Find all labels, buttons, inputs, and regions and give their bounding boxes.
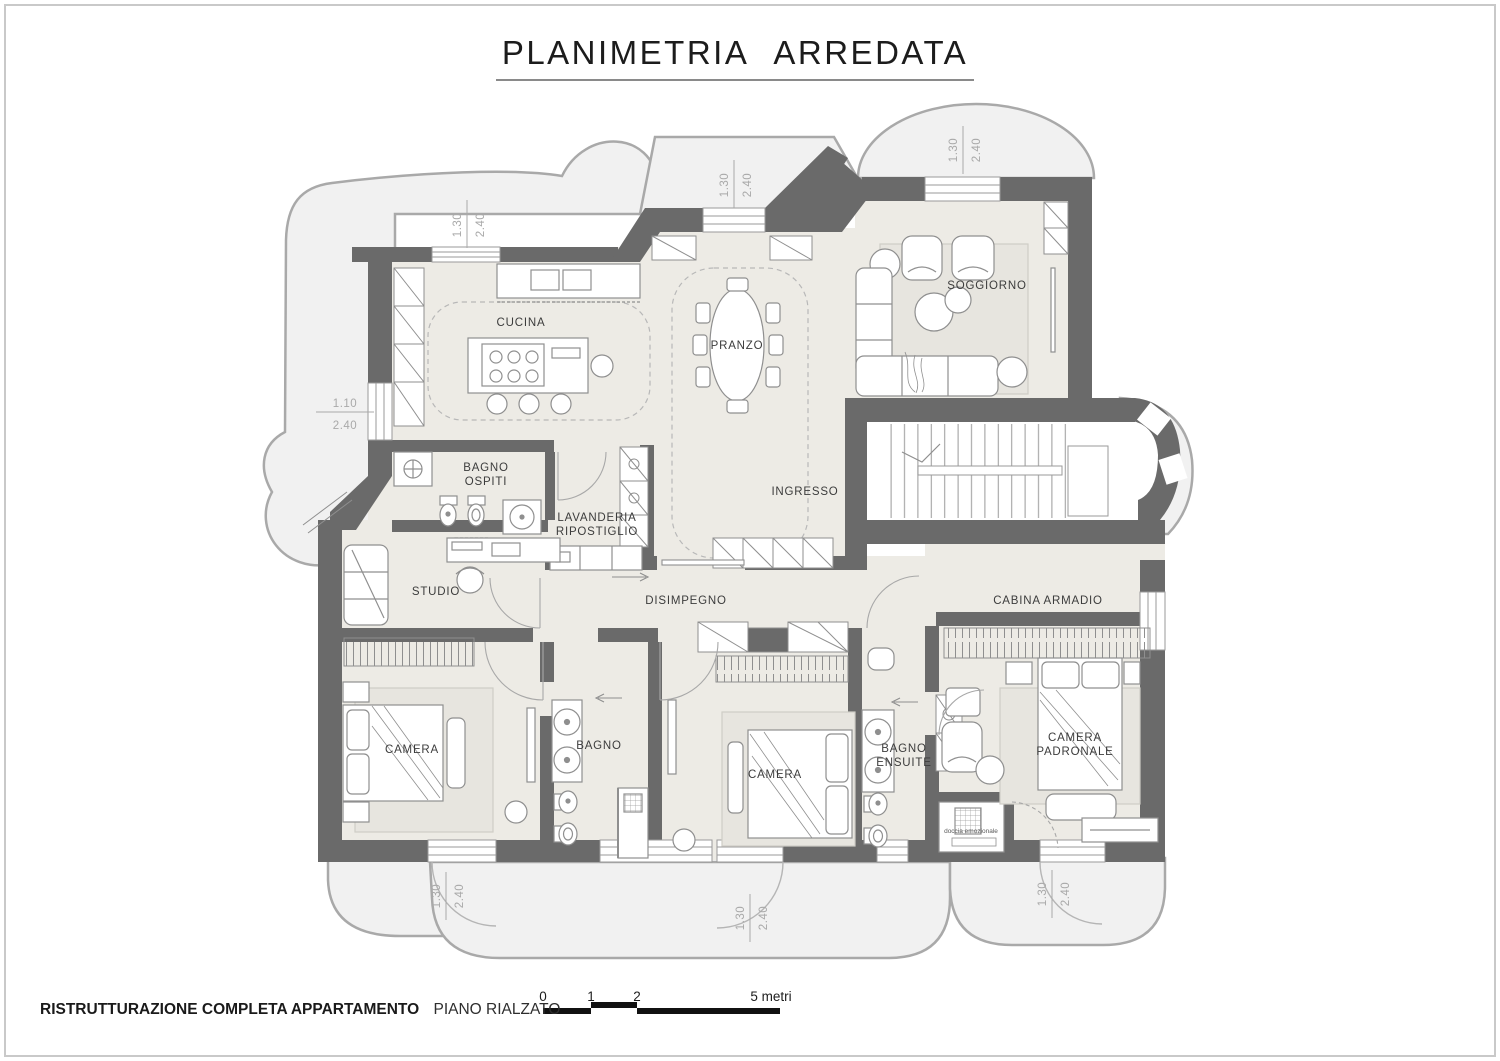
floor-name: PIANO RIALZATO	[433, 1001, 560, 1018]
drawing-sheet: PLANIMETRIA ARREDATA	[0, 0, 1500, 1061]
svg-text:1.30: 1.30	[948, 138, 960, 162]
room-label-bagno-ospiti-1: BAGNO	[463, 462, 509, 474]
room-label-studio: STUDIO	[412, 586, 460, 598]
room-label-doccia-emozionale: doccia emozionale	[944, 828, 998, 835]
room-label-bagno-ospiti-2: OSPITI	[465, 476, 508, 488]
window-bagno-sud	[600, 840, 712, 862]
living-room	[856, 236, 1055, 396]
svg-text:2.40: 2.40	[333, 420, 357, 432]
room-label-camera-centrale: CAMERA	[748, 769, 802, 781]
room-label-cabina-armadio: CABINA ARMADIO	[993, 595, 1103, 607]
svg-text:1.30: 1.30	[735, 906, 747, 930]
sheet-title: PLANIMETRIA ARREDATA	[496, 34, 974, 81]
svg-text:2.40: 2.40	[971, 138, 983, 162]
room-label-lavanderia-2: RIPOSTIGLIO	[556, 526, 638, 538]
sheet-title-wrap: PLANIMETRIA ARREDATA	[0, 34, 1485, 81]
svg-text:1.30: 1.30	[1037, 882, 1049, 906]
window-camera-padronale	[1040, 840, 1105, 862]
room-label-bagno: BAGNO	[576, 740, 622, 752]
room-label-ingresso: INGRESSO	[771, 486, 838, 498]
svg-text:1.30: 1.30	[719, 173, 731, 197]
room-label-soggiorno: SOGGIORNO	[947, 280, 1026, 292]
room-label-camera-padronale-1: CAMERA	[1048, 732, 1102, 744]
svg-text:1.30: 1.30	[431, 884, 443, 908]
room-label-pranzo: PRANZO	[711, 340, 764, 352]
scale-tick-5: 5 metri	[750, 989, 791, 1004]
scale-tick-2: 2	[633, 989, 641, 1004]
kitchen-counter	[497, 264, 640, 302]
svg-text:1.30: 1.30	[452, 213, 464, 237]
room-label-bagno-ensuite-1: BAGNO	[881, 743, 927, 755]
doccia-emozionale	[939, 802, 1004, 852]
project-title: RISTRUTTURAZIONE COMPLETA APPARTAMENTO	[40, 1001, 419, 1018]
terrace-bottom-center	[430, 862, 950, 958]
room-label-camera-padronale-2: PADRONALE	[1036, 746, 1113, 758]
room-label-cucina: CUCINA	[497, 317, 546, 329]
scale-tick-1: 1	[587, 989, 595, 1004]
title-block: RISTRUTTURAZIONE COMPLETA APPARTAMENTO P…	[40, 1001, 560, 1019]
svg-text:2.40: 2.40	[742, 173, 754, 197]
floor-plan-svg: CUCINA PRANZO SOGGIORNO BAGNO OSPITI LAV…	[0, 0, 1500, 1061]
shelf-soggiorno	[1044, 202, 1068, 254]
rail-camera-centro	[716, 656, 848, 682]
rail-camera-sx	[344, 638, 474, 666]
room-label-disimpegno: DISIMPEGNO	[645, 595, 726, 607]
window-camera-sx	[428, 840, 496, 862]
svg-text:1.10: 1.10	[333, 398, 357, 410]
room-label-lavanderia-1: LAVANDERIA	[557, 512, 636, 524]
lavanderia-units	[550, 546, 642, 570]
rail-cabina-armadio	[944, 628, 1150, 658]
window-soggiorno	[925, 177, 1000, 201]
room-label-camera-sx: CAMERA	[385, 744, 439, 756]
window-pranzo-bay	[703, 208, 765, 232]
room-label-bagno-ensuite-2: ENSUITE	[876, 757, 931, 769]
svg-text:2.40: 2.40	[475, 213, 487, 237]
window-cucina	[432, 247, 500, 262]
terrace-bottom-right	[950, 858, 1165, 945]
svg-text:2.40: 2.40	[454, 884, 466, 908]
scale-bar: 0 1 2 5 metri	[539, 989, 791, 1014]
svg-text:2.40: 2.40	[758, 906, 770, 930]
svg-text:2.40: 2.40	[1060, 882, 1072, 906]
closet-cucina-left	[394, 268, 424, 426]
